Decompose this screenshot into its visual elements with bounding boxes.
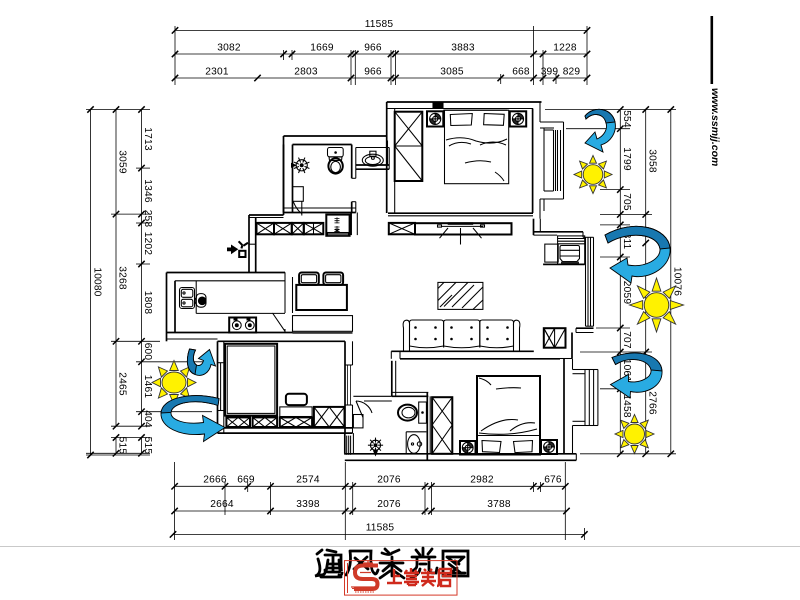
svg-text:1713: 1713 bbox=[142, 127, 153, 151]
svg-text:600: 600 bbox=[142, 343, 153, 361]
svg-text:705: 705 bbox=[621, 193, 632, 211]
svg-text:554: 554 bbox=[621, 110, 632, 128]
svg-text:2301: 2301 bbox=[205, 67, 229, 78]
svg-text:829: 829 bbox=[563, 67, 581, 78]
svg-text:2574: 2574 bbox=[296, 475, 320, 486]
svg-text:2666: 2666 bbox=[203, 475, 227, 486]
svg-text:3058: 3058 bbox=[647, 149, 658, 173]
svg-text:10080: 10080 bbox=[92, 267, 103, 296]
svg-text:676: 676 bbox=[544, 475, 562, 486]
svg-text:669: 669 bbox=[237, 475, 255, 486]
svg-text:3085: 3085 bbox=[440, 67, 464, 78]
svg-text:966: 966 bbox=[364, 67, 382, 78]
svg-text:258: 258 bbox=[142, 210, 153, 228]
svg-text:668: 668 bbox=[512, 67, 530, 78]
svg-text:707: 707 bbox=[621, 331, 632, 349]
svg-text:3059: 3059 bbox=[117, 150, 128, 174]
svg-text:2766: 2766 bbox=[647, 391, 658, 415]
svg-text:2059: 2059 bbox=[621, 281, 632, 305]
svg-text:11585: 11585 bbox=[365, 19, 394, 30]
svg-text:3883: 3883 bbox=[451, 43, 475, 54]
svg-text:404: 404 bbox=[142, 410, 153, 428]
svg-text:515: 515 bbox=[142, 437, 153, 455]
svg-text:1202: 1202 bbox=[142, 232, 153, 256]
svg-text:515: 515 bbox=[117, 437, 128, 455]
svg-text:966: 966 bbox=[364, 43, 382, 54]
svg-text:3082: 3082 bbox=[217, 43, 241, 54]
svg-text:2664: 2664 bbox=[210, 499, 234, 510]
svg-text:1228: 1228 bbox=[553, 43, 577, 54]
svg-text:3268: 3268 bbox=[117, 266, 128, 290]
svg-text:3788: 3788 bbox=[487, 499, 511, 510]
svg-text:3398: 3398 bbox=[296, 499, 320, 510]
svg-text:1799: 1799 bbox=[621, 147, 632, 171]
svg-text:www.ssmjj.com: www.ssmjj.com bbox=[709, 88, 721, 166]
svg-text:1669: 1669 bbox=[310, 43, 334, 54]
svg-text:11585: 11585 bbox=[366, 523, 395, 534]
svg-text:10076: 10076 bbox=[672, 267, 683, 296]
svg-text:2803: 2803 bbox=[294, 67, 318, 78]
svg-text:2465: 2465 bbox=[117, 372, 128, 396]
svg-text:1808: 1808 bbox=[142, 291, 153, 315]
svg-text:2982: 2982 bbox=[470, 475, 494, 486]
svg-text:2076: 2076 bbox=[377, 475, 401, 486]
svg-text:1461: 1461 bbox=[142, 375, 153, 399]
svg-text:1346: 1346 bbox=[142, 179, 153, 203]
svg-text:2076: 2076 bbox=[377, 499, 401, 510]
